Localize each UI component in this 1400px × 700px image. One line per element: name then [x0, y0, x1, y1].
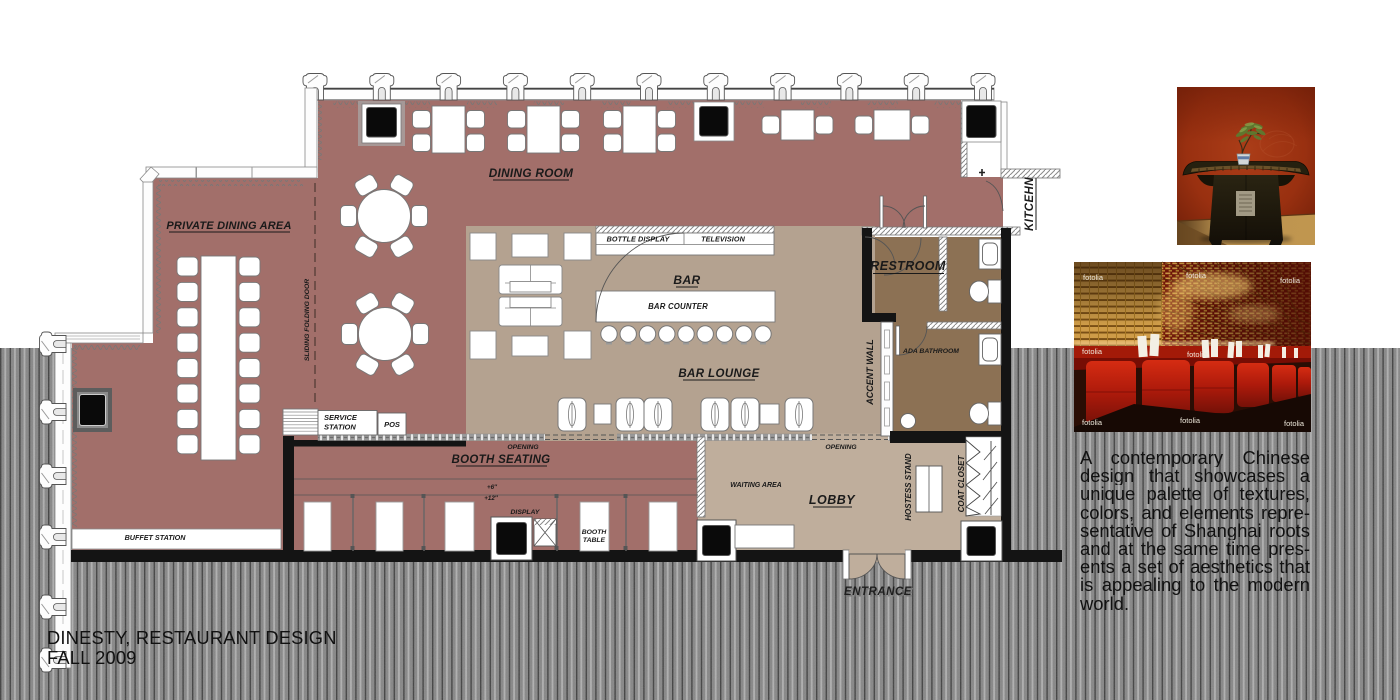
svg-text:+6″: +6″ [487, 484, 498, 491]
svg-text:BAR: BAR [673, 273, 700, 287]
svg-text:BOTTLE DISPLAY: BOTTLE DISPLAY [607, 235, 671, 244]
svg-text:PRIVATE DINING AREA: PRIVATE DINING AREA [166, 220, 291, 232]
svg-text:POS: POS [384, 420, 400, 429]
svg-text:fotolia: fotolia [1284, 419, 1305, 428]
svg-text:ADA BATHROOM: ADA BATHROOM [902, 348, 959, 355]
svg-text:fotolia: fotolia [1082, 347, 1103, 356]
svg-text:fotolia: fotolia [1187, 350, 1208, 359]
svg-text:TABLE: TABLE [583, 537, 606, 544]
svg-text:+12″: +12″ [484, 495, 498, 502]
svg-text:BAR COUNTER: BAR COUNTER [648, 302, 708, 311]
svg-text:fotolia: fotolia [1186, 271, 1207, 280]
svg-text:DISPLAY: DISPLAY [511, 509, 541, 516]
svg-text:COAT CLOSET: COAT CLOSET [957, 455, 966, 513]
svg-text:DINING ROOM: DINING ROOM [489, 166, 574, 180]
svg-text:fotolia: fotolia [1082, 418, 1103, 427]
svg-text:ENTRANCE: ENTRANCE [844, 586, 912, 598]
svg-text:STATION: STATION [324, 423, 356, 432]
svg-text:TELEVISION: TELEVISION [701, 235, 745, 244]
svg-text:fotolia: fotolia [1083, 273, 1104, 282]
svg-text:fotolia: fotolia [1280, 276, 1301, 285]
svg-text:SLIDING FOLDING DOOR: SLIDING FOLDING DOOR [304, 279, 311, 361]
svg-text:LOBBY: LOBBY [809, 493, 856, 507]
svg-text:BOOTH: BOOTH [582, 529, 608, 536]
svg-text:RESTROOM: RESTROOM [870, 259, 946, 273]
svg-text:SERVICE: SERVICE [324, 413, 358, 422]
svg-text:ACCENT WALL: ACCENT WALL [865, 339, 875, 406]
svg-text:HOSTESS STAND: HOSTESS STAND [904, 453, 913, 521]
svg-text:BAR LOUNGE: BAR LOUNGE [678, 368, 759, 380]
svg-text:KITCEHN: KITCEHN [1024, 177, 1036, 231]
svg-text:fotolia: fotolia [1180, 416, 1201, 425]
svg-text:BOOTH SEATING: BOOTH SEATING [452, 454, 551, 466]
svg-text:OPENING: OPENING [507, 444, 539, 451]
svg-text:BUFFET STATION: BUFFET STATION [125, 533, 187, 542]
svg-text:WAITING AREA: WAITING AREA [730, 482, 781, 489]
svg-text:OPENING: OPENING [825, 444, 857, 451]
